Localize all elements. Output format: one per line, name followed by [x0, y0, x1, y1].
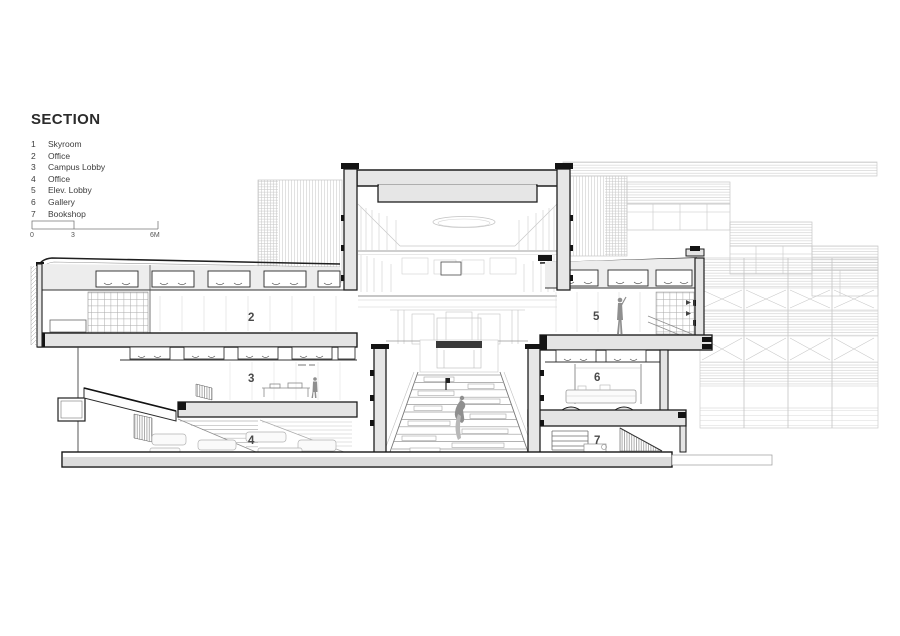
oculus-ellipse	[433, 217, 495, 228]
floor-slab-right-2	[528, 410, 686, 426]
office4-furniture	[150, 432, 336, 454]
lower-left-box	[58, 398, 85, 421]
bookshop-shelves	[552, 431, 588, 450]
atrium-interior	[358, 204, 557, 344]
person-elev-lobby	[617, 297, 626, 334]
room-label-5: 5	[593, 311, 600, 323]
ground-slab	[62, 452, 772, 467]
stair-door-header	[436, 341, 482, 348]
skyroom-column-left	[344, 169, 357, 290]
ceiling-coffers-right	[558, 270, 692, 286]
atrium-column-right	[528, 345, 540, 453]
room-label-7: 7	[594, 435, 600, 447]
bg-curtainwall-grid	[700, 258, 878, 428]
bg-tower-right	[565, 176, 627, 256]
room-label-3: 3	[248, 373, 254, 385]
bg-roof-fascia	[563, 162, 877, 176]
atrium-column-left	[374, 345, 386, 453]
person-campus-lobby	[312, 377, 318, 398]
annex-desk	[50, 320, 86, 332]
floor-slab-right-1	[540, 335, 712, 350]
room-label-2: 2	[248, 312, 254, 324]
bg-mass-a	[627, 182, 730, 230]
campus-lobby-desk	[262, 383, 310, 397]
floor-slab-left-1	[38, 333, 357, 347]
right-wing-section	[528, 246, 712, 452]
mezzanine-slab-left	[178, 402, 357, 417]
annex-shelving	[88, 292, 148, 333]
left-wing-section	[31, 258, 357, 454]
section-drawing: 2 3 4 5 6 7	[0, 0, 900, 636]
skyroom-roof-slab	[357, 170, 558, 186]
room-label-4: 4	[248, 435, 255, 447]
gallery-counter	[566, 390, 636, 403]
ramp	[84, 388, 176, 421]
skyroom-column-right	[557, 169, 570, 290]
room-label-6: 6	[594, 372, 600, 384]
